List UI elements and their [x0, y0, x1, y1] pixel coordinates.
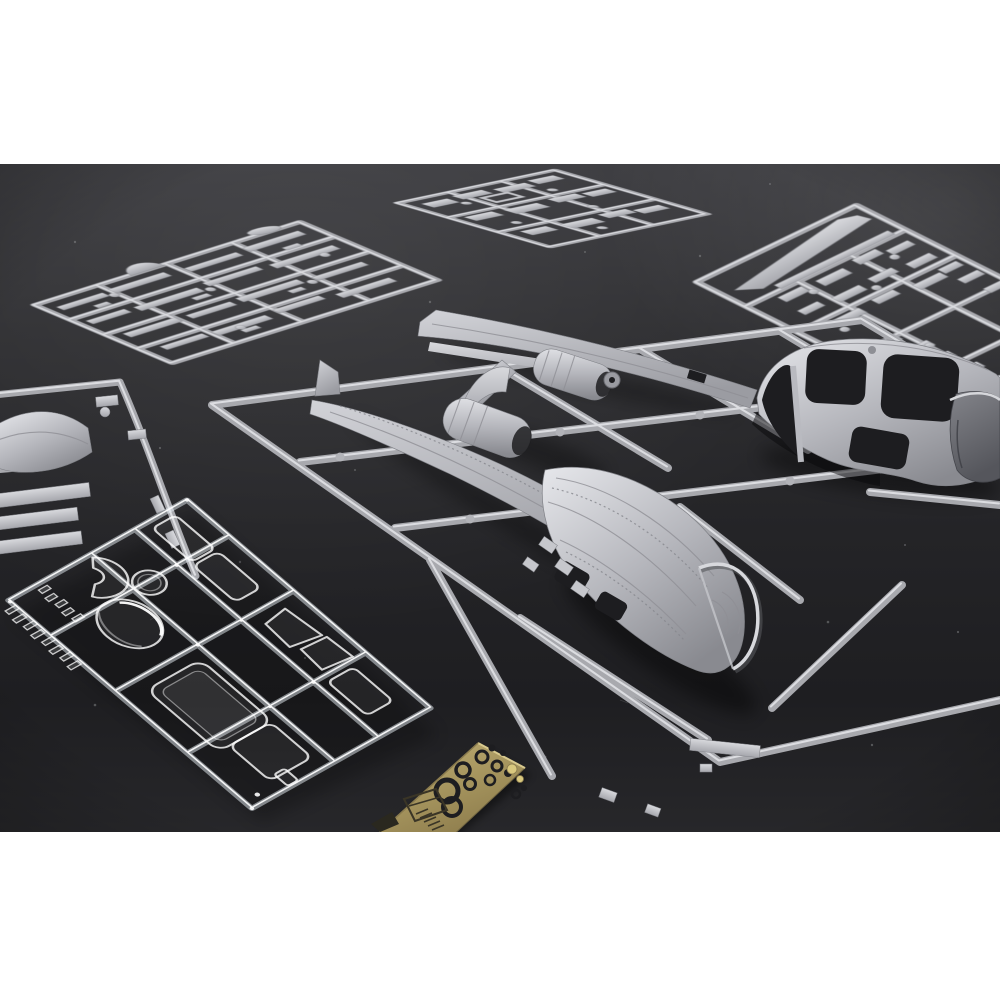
photo-canvas: [0, 0, 1000, 1000]
wheel-part: [604, 372, 620, 388]
dark-cowl-panel-part: [950, 392, 1000, 483]
model-kit-photo: [0, 0, 1000, 1000]
